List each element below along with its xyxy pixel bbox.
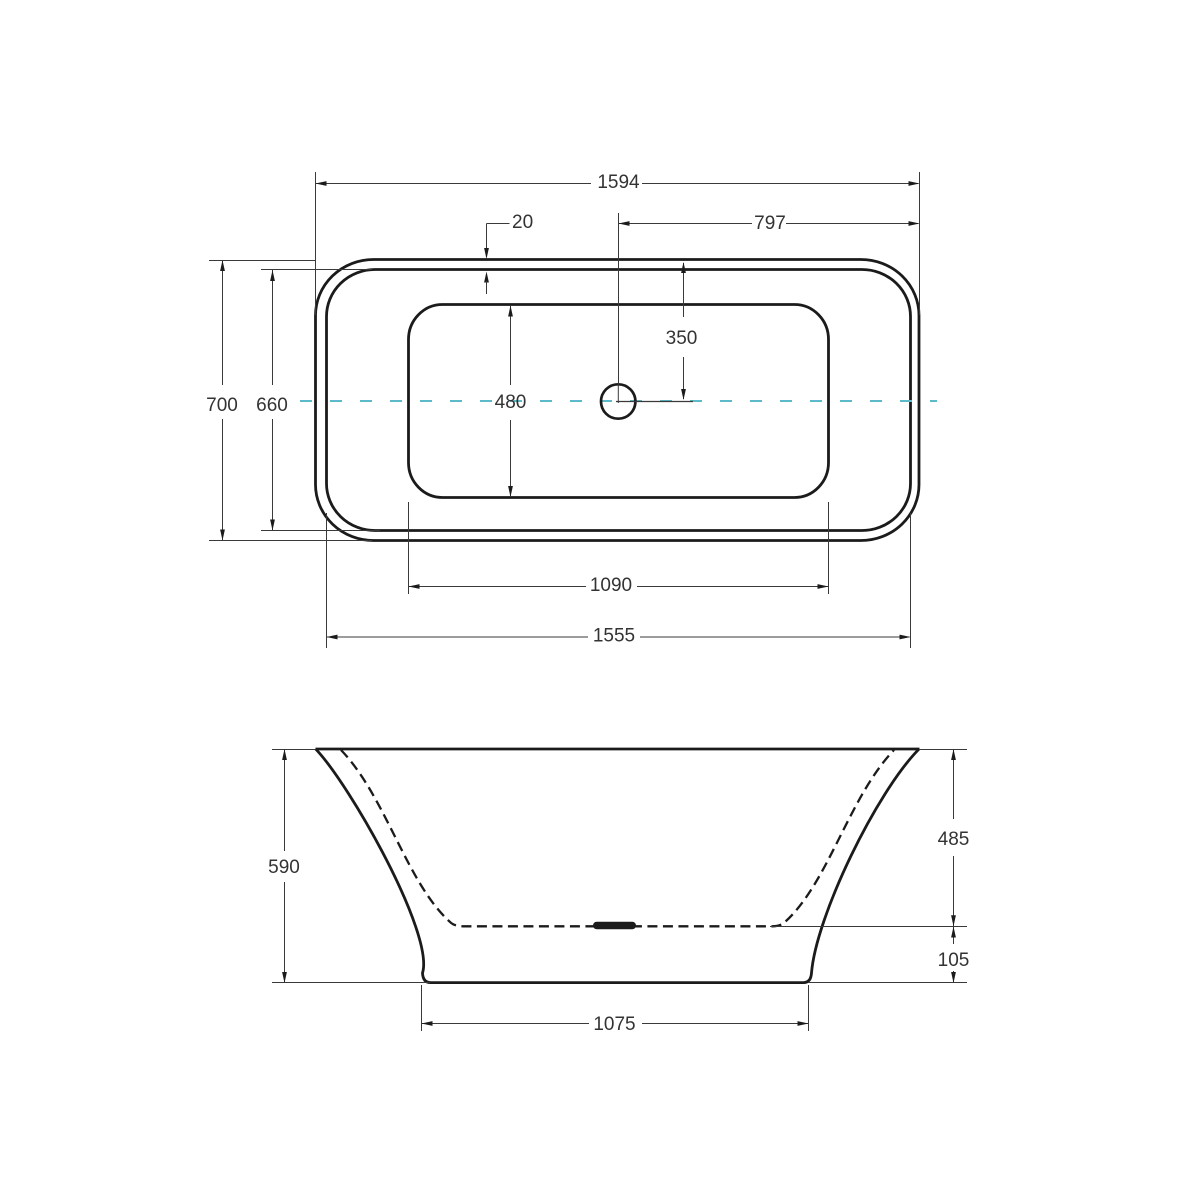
svg-text:480: 480: [495, 392, 527, 413]
svg-text:700: 700: [206, 395, 238, 416]
svg-text:1075: 1075: [593, 1014, 635, 1035]
svg-text:350: 350: [666, 328, 698, 349]
svg-text:1090: 1090: [590, 575, 632, 596]
svg-text:1555: 1555: [593, 626, 635, 647]
svg-text:20: 20: [512, 212, 533, 233]
svg-text:660: 660: [256, 395, 288, 416]
svg-text:797: 797: [754, 213, 786, 234]
svg-text:1594: 1594: [597, 172, 640, 193]
svg-text:105: 105: [938, 950, 970, 971]
svg-text:485: 485: [938, 829, 970, 850]
svg-text:590: 590: [268, 857, 300, 878]
